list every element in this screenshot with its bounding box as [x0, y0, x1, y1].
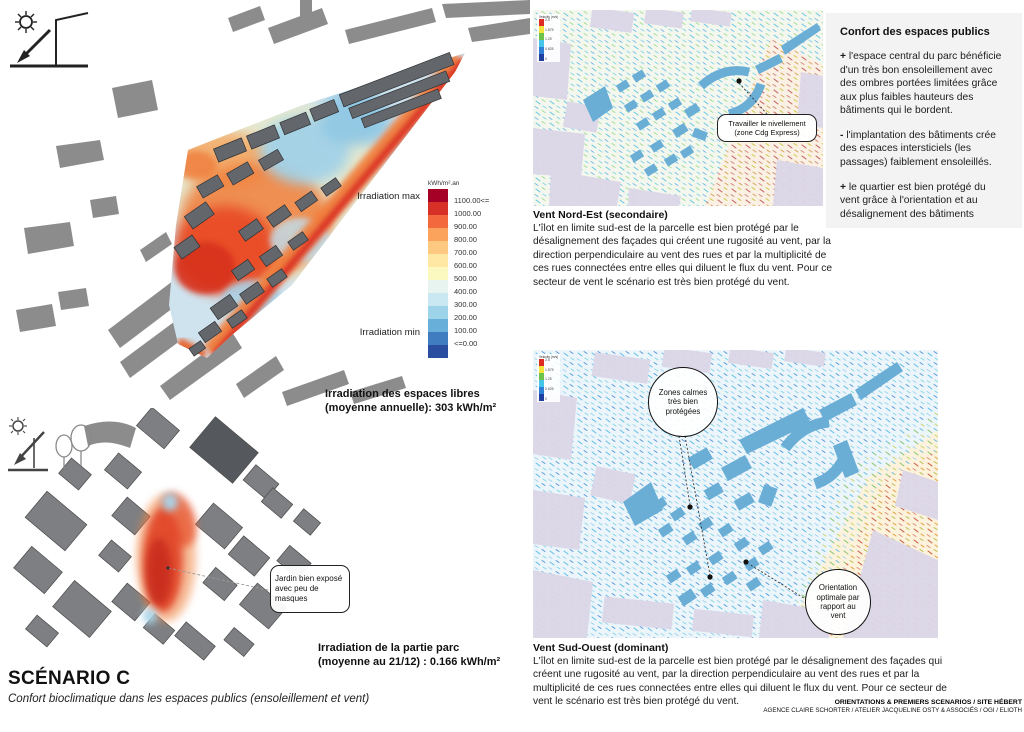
legend-swatch — [428, 241, 448, 254]
legend-value: 100.00 — [454, 326, 477, 335]
wind-sw-heading: Vent Sud-Ouest (dominant) — [533, 642, 961, 654]
legend-value: 500.00 — [454, 274, 477, 283]
wind-map-ne-graphic — [533, 10, 823, 206]
parc-map-graphic — [0, 408, 360, 663]
legend-value: 600.00 — [454, 261, 477, 270]
legend-value: 900.00 — [454, 222, 477, 231]
sidebar-confort: Confort des espaces publics + l'espace c… — [826, 13, 1022, 228]
sidebar-item: + l'espace central du parc bénéficie d'u… — [840, 50, 1008, 118]
legend-swatch — [428, 293, 448, 306]
credits-line1: ORIENTATIONS & PREMIERS SCENARIOS / SITE… — [602, 699, 1022, 706]
wind-ne-body: L'îlot en limite sud-est de la parcelle … — [533, 222, 836, 289]
legend-swatch — [428, 228, 448, 241]
sidebar-heading: Confort des espaces publics — [840, 26, 1008, 38]
legend-value: <=0.00 — [454, 339, 477, 348]
sun-diagram-icon — [10, 11, 88, 66]
title-block: SCÉNARIO C Confort bioclimatique dans le… — [8, 668, 369, 705]
wind-map-ne: Velocity (m/s) 2.51.8751.250.6250 Travai… — [533, 10, 823, 206]
sidebar-item-text: l'implantation des bâtiments crée des es… — [840, 130, 996, 168]
ne-anchor-dot — [736, 78, 741, 83]
legend-unit: kWh/m².an — [428, 180, 459, 187]
page-title: SCÉNARIO C — [8, 668, 369, 690]
caption-line: Irradiation des espaces libres — [325, 387, 545, 401]
sw-velocity-legend: Velocity (m/s) 2.51.8751.250.6250 — [537, 354, 560, 402]
caption-partie-parc: Irradiation de la partie parc (moyenne a… — [318, 641, 548, 670]
legend-step: 1100.00<= — [428, 189, 489, 202]
credits: ORIENTATIONS & PREMIERS SCENARIOS / SITE… — [602, 699, 1022, 714]
legend-swatch — [428, 202, 448, 215]
credits-line2: AGENCE CLAIRE SCHORTER / ATELIER JACQUEL… — [602, 707, 1022, 714]
ne-velocity-legend: Velocity (m/s) 2.51.8751.250.6250 — [537, 14, 560, 62]
wind-map-sw: Velocity (m/s) 2.51.8751.250.6250 Zones … — [533, 350, 938, 638]
callout-zones-calmes-text: Zones calmes très bien protégées — [655, 388, 711, 416]
legend-value: 400.00 — [454, 287, 477, 296]
callout-orientation: Orientation optimale par rapport au vent — [805, 569, 871, 635]
legend-swatch — [428, 215, 448, 228]
legend-value: 700.00 — [454, 248, 477, 257]
callout-nivellement-text: Travailler le nivellement (zone Cdg Expr… — [722, 119, 812, 138]
irradiation-legend: kWh/m².an Irradiation max Irradiation mi… — [350, 180, 520, 370]
legend-max-label: Irradiation max — [350, 192, 420, 202]
parc-heat-strip — [136, 488, 203, 624]
page-subtitle: Confort bioclimatique dans les espaces p… — [8, 693, 369, 705]
legend-swatch — [428, 189, 448, 202]
callout-anchor-dot — [166, 566, 169, 569]
plus-sign: + — [840, 51, 846, 62]
legend-swatch — [428, 332, 448, 345]
legend-swatch — [428, 319, 448, 332]
legend-value: 200.00 — [454, 313, 477, 322]
plus-sign: + — [840, 182, 846, 193]
callout-jardin-text: Jardin bien exposé avec peu de masques — [275, 574, 345, 604]
callout-zones-calmes: Zones calmes très bien protégées — [648, 367, 718, 437]
legend-swatch — [428, 267, 448, 280]
legend-value: 1000.00 — [454, 209, 481, 218]
wind-ne-text: Vent Nord-Est (secondaire) L'îlot en lim… — [533, 209, 836, 289]
legend-swatch — [428, 254, 448, 267]
legend-value: 300.00 — [454, 300, 477, 309]
sidebar-item: + le quartier est bien protégé du vent g… — [840, 181, 1008, 222]
legend-swatch — [428, 280, 448, 293]
caption-line: Irradiation de la partie parc — [318, 641, 548, 655]
legend-value: 800.00 — [454, 235, 477, 244]
legend-min-label: Irradiation min — [350, 328, 420, 338]
legend-value: 1100.00<= — [454, 196, 489, 205]
callout-nivellement: Travailler le nivellement (zone Cdg Expr… — [717, 114, 817, 142]
sidebar-item-text: l'espace central du parc bénéficie d'un … — [840, 51, 1001, 116]
parc-map: Jardin bien exposé avec peu de masques — [0, 408, 360, 663]
wind-ne-heading: Vent Nord-Est (secondaire) — [533, 209, 836, 221]
wind-map-sw-graphic — [533, 350, 938, 638]
sidebar-item-text: le quartier est bien protégé du vent grâ… — [840, 182, 986, 220]
irradiation-legend-steps: 1100.00<=1000.00900.00800.00700.00600.00… — [428, 189, 489, 358]
callout-orientation-text: Orientation optimale par rapport au vent — [812, 583, 864, 620]
sun-trees-diagram-icon — [8, 417, 91, 470]
minus-sign: - — [840, 130, 843, 141]
legend-swatch — [428, 345, 448, 358]
legend-swatch — [428, 306, 448, 319]
callout-jardin: Jardin bien exposé avec peu de masques — [270, 565, 350, 613]
sidebar-item: - l'implantation des bâtiments crée des … — [840, 129, 1008, 170]
